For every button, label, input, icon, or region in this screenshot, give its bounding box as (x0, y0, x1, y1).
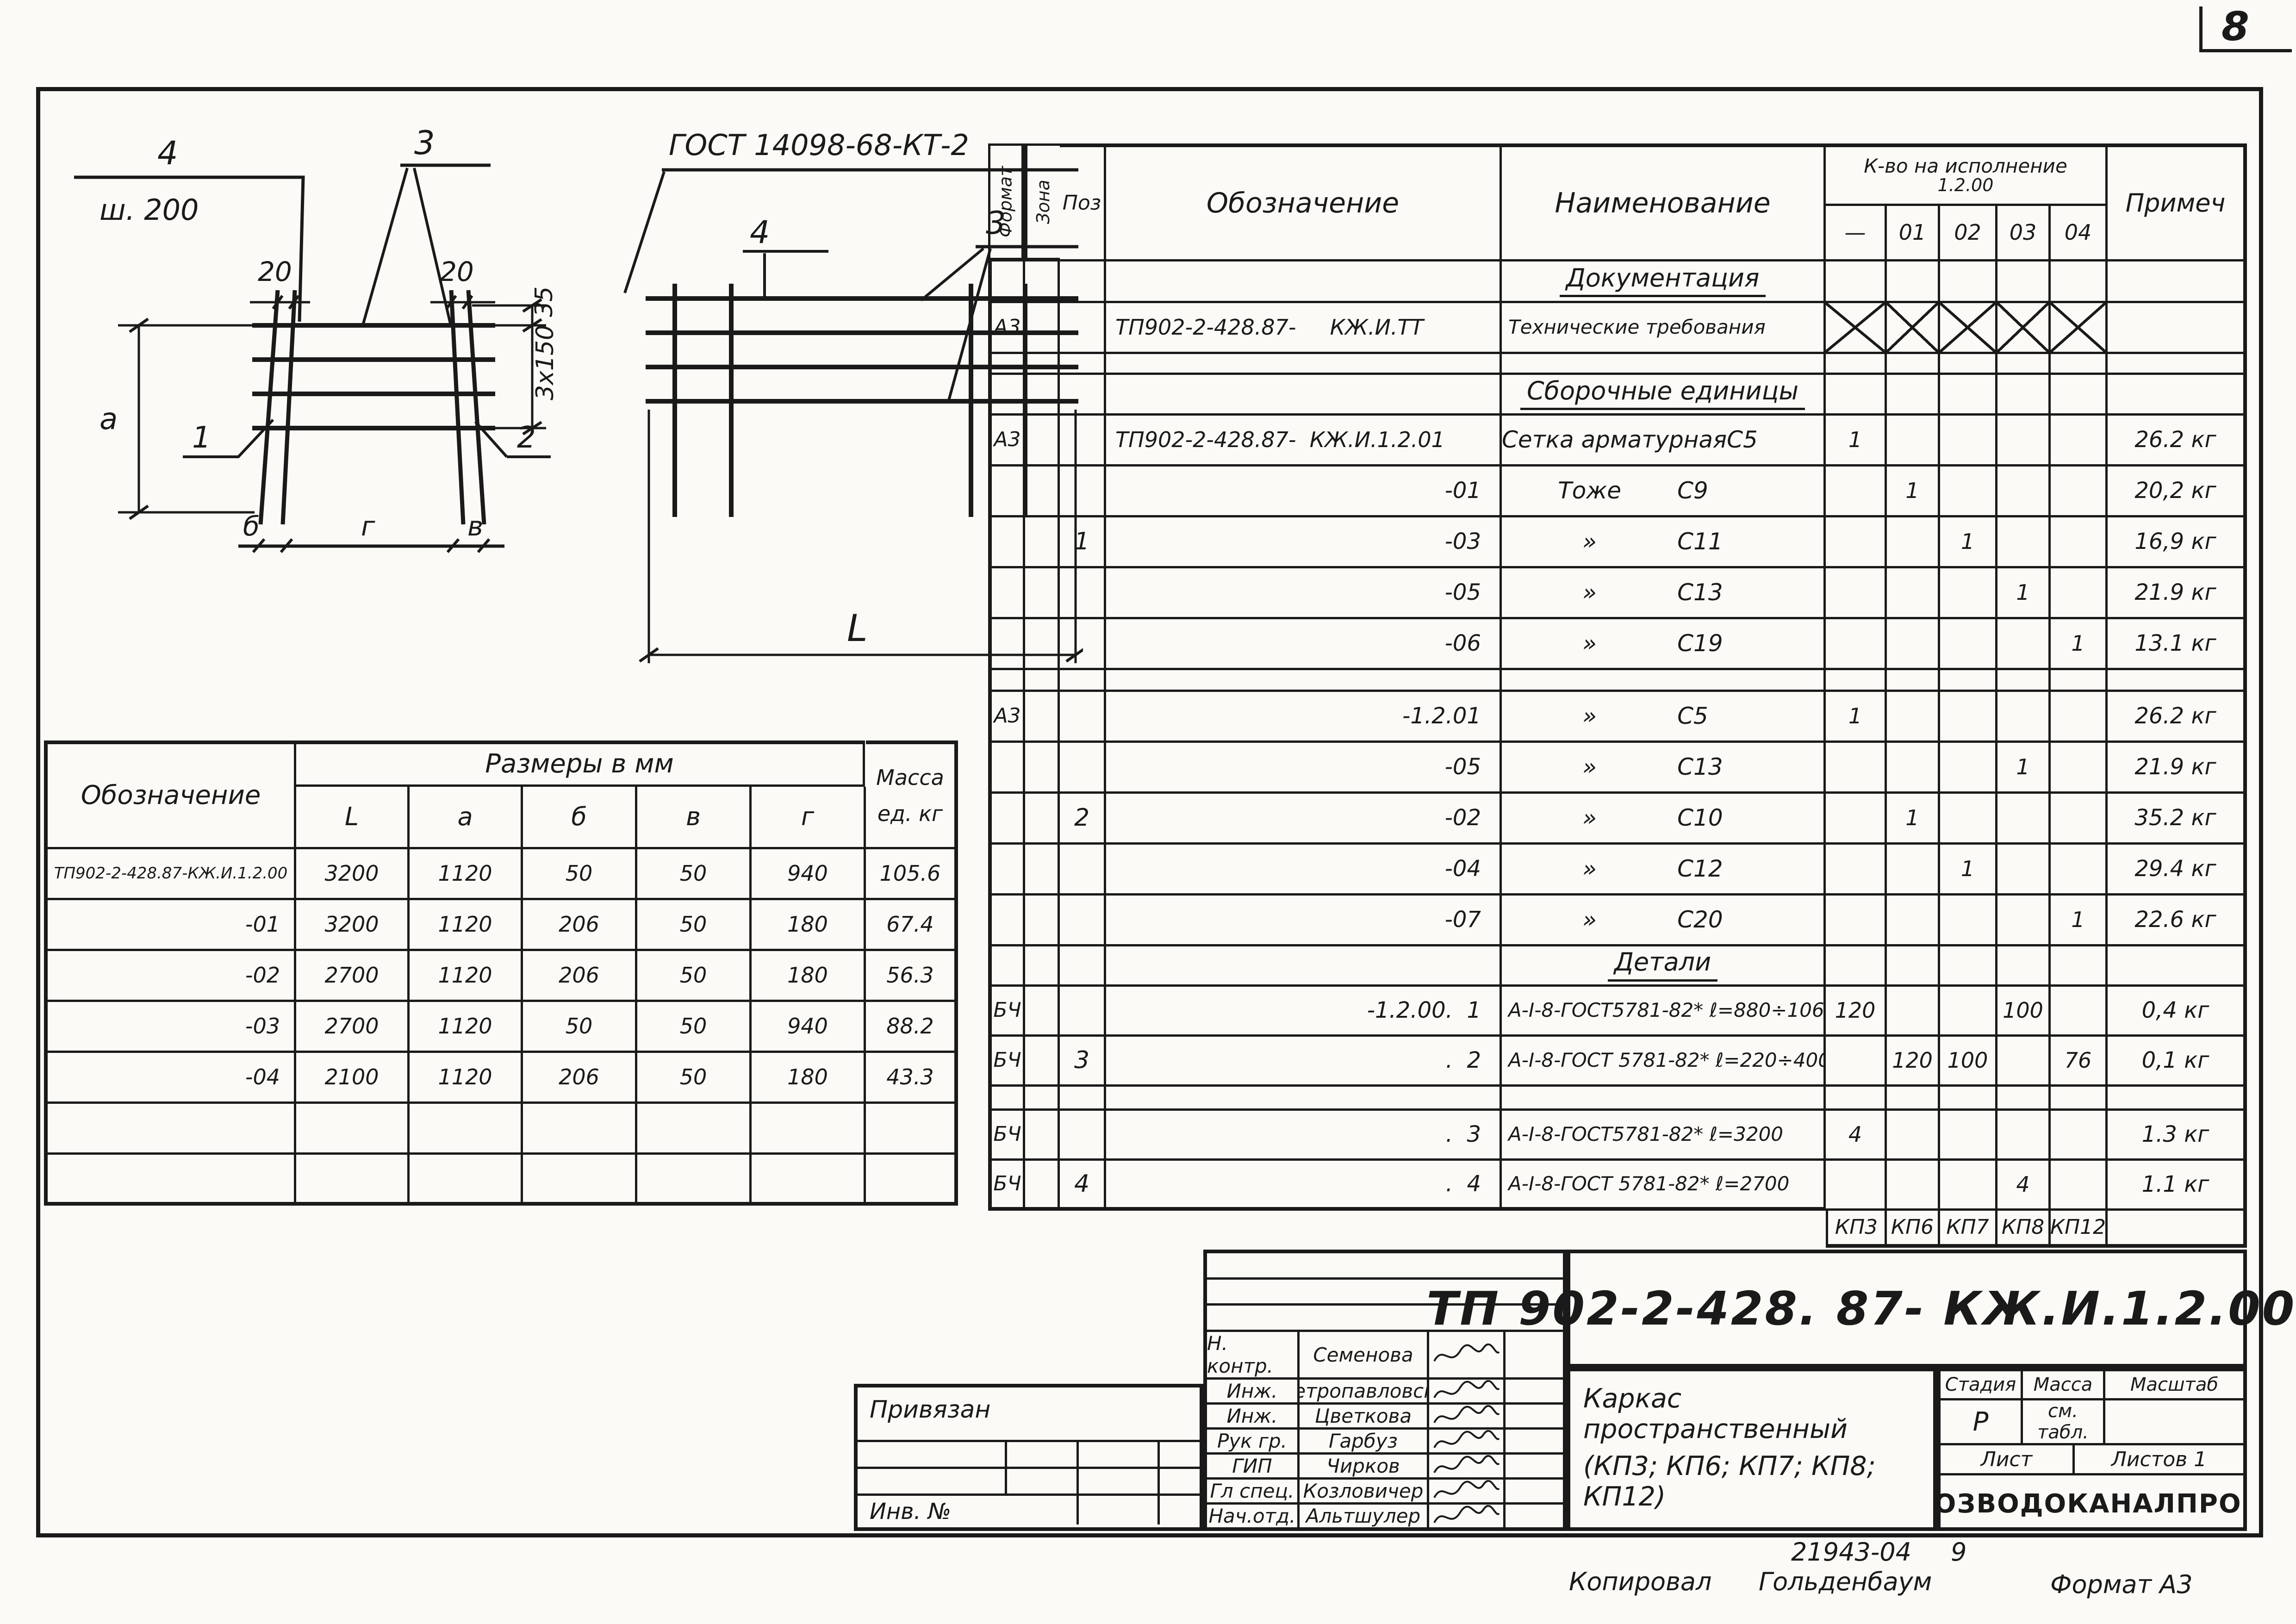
spec-cell-note: 22.6 кг (2108, 896, 2247, 946)
spec-cell-qty-1 (1887, 743, 1940, 794)
spec-cell-zone (1025, 303, 1060, 354)
spec-cell-qty-1 (1887, 354, 1940, 375)
dims-header-size-3: в (637, 787, 752, 849)
spec-cell-pos: 1 (1060, 517, 1106, 568)
spec-cell-note: 1.3 кг (2108, 1111, 2247, 1161)
spec-cell-qty-4 (2051, 1111, 2108, 1161)
signature-cell (1429, 1505, 1506, 1527)
signature-row: Рук гр.Гарбуз (1207, 1430, 1563, 1455)
spec-cell-qty-4: 1 (2051, 619, 2108, 670)
spec-cell-qty-4 (2051, 987, 2108, 1037)
spec-cell-pos (1060, 354, 1106, 375)
spec-cell-qty-1 (1887, 416, 1940, 467)
spec-cell-qty-3: 4 (1997, 1161, 2051, 1211)
spec-cell-format (988, 354, 1025, 375)
spec-header-qty-3: 03 (1997, 206, 2051, 261)
spec-cell-qty-1 (1887, 1111, 1940, 1161)
spec-cell-note (2108, 1087, 2247, 1111)
spec-cell-format (988, 896, 1025, 946)
dims-cell-2: 1120 (410, 951, 523, 1002)
drawing-sheet: 8 (0, 0, 2296, 1624)
signature-date (1506, 1455, 1563, 1477)
spec-cell-pos (1060, 946, 1106, 987)
signature-row: Инж.Петропавловска (1207, 1380, 1563, 1405)
spec-cell-zone (1025, 1087, 1060, 1111)
spec-cell-qty-4 (2051, 467, 2108, 517)
dims-cell-5: 180 (752, 900, 866, 951)
spec-cell-pos (1060, 303, 1106, 354)
dims-cell-0 (44, 1155, 296, 1206)
spec-cell-pos (1060, 692, 1106, 743)
spec-cell-format (988, 743, 1025, 794)
spec-cell-qty-4 (2051, 375, 2108, 416)
signature-date (1506, 1480, 1563, 1502)
spec-cell-qty-3 (1997, 303, 2051, 354)
spec-cell-qty-2 (1940, 354, 1997, 375)
label-pitch: ш. 200 (100, 193, 199, 227)
spec-cell-qty-3 (1997, 794, 2051, 845)
spec-cell-qty-2 (1940, 1087, 1997, 1111)
spec-cell-qty-4: 1 (2051, 896, 2108, 946)
spec-cell-qty-2: 1 (1940, 845, 1997, 896)
spec-cell-zone (1025, 743, 1060, 794)
spec-cell-designation: -1.2.01 (1106, 692, 1502, 743)
spec-cell-note: 16,9 кг (2108, 517, 2247, 568)
spec-cell-qty-1 (1887, 619, 1940, 670)
spec-cell-qty-2 (1940, 670, 1997, 692)
spec-cell-qty-2 (1940, 1161, 1997, 1211)
spec-cell-qty-4: 76 (2051, 1037, 2108, 1087)
doc-number-cell: ТП 902-2-428. 87- КЖ.И.1.2.00 СБ (1567, 1250, 2247, 1368)
drawing-title-line2: (КП3; КП6; КП7; КП8; КП12) (1583, 1451, 1933, 1512)
spec-cell-note (2108, 303, 2247, 354)
spec-cell-pos (1060, 261, 1106, 303)
spec-cell-qty-4 (2051, 794, 2108, 845)
spec-cell-designation: ТП902-2-428.87- КЖ.И.ТТ (1106, 303, 1502, 354)
dims-cell-0: -03 (44, 1002, 296, 1053)
scale-value (2105, 1400, 2243, 1443)
spec-cell-note: 13.1 кг (2108, 619, 2247, 670)
spec-cell-note (2108, 946, 2247, 987)
spec-cell-qty-2 (1940, 303, 1997, 354)
title-cell: Каркас пространственный (КП3; КП6; КП7; … (1567, 1368, 1937, 1531)
dims-cell-1: 2700 (296, 1002, 410, 1053)
mass-label: Масса (2023, 1371, 2105, 1398)
specification-table: ФорматЗонаПозОбозначениеНаименованиеК-во… (988, 143, 2247, 1250)
dims-cell-2: 1120 (410, 900, 523, 951)
spec-cell-zone (1025, 670, 1060, 692)
spec-header-pos: Поз (1060, 143, 1106, 261)
signature (1431, 1430, 1501, 1452)
kp-label-3: КП8 (1997, 1211, 2051, 1248)
dims-header-group: Размеры в мм (296, 740, 865, 787)
spec-cell-qty-4 (2051, 261, 2108, 303)
signature-date (1506, 1405, 1563, 1427)
dims-header-size-1: а (410, 787, 523, 849)
sheet-label: Лист (1941, 1445, 2075, 1473)
signature-cell (1429, 1332, 1506, 1377)
spec-cell-note (2108, 375, 2247, 416)
spec-cell-qty-2 (1940, 619, 1997, 670)
signature (1431, 1505, 1501, 1527)
spec-cell-qty-0 (1826, 517, 1887, 568)
spec-cell-qty-2: 1 (1940, 517, 1997, 568)
spec-cell-name: »С19 (1502, 619, 1826, 670)
spec-cell-qty-2 (1940, 946, 1997, 987)
sketch-frame-section: 4 ш. 200 3 20 20 а 35 3x150 1 2 б г в (44, 118, 562, 553)
spec-section-title: Документация (1502, 261, 1826, 303)
spec-cell-qty-1 (1887, 517, 1940, 568)
dims-header-size-2: б (523, 787, 637, 849)
binding-box: Привязан Инв. № (854, 1384, 1203, 1531)
spec-cell-zone (1025, 1037, 1060, 1087)
spec-cell-zone (1025, 416, 1060, 467)
dims-cell-4: 50 (637, 951, 752, 1002)
spec-cell-qty-0 (1826, 670, 1887, 692)
spec-cell-qty-3 (1997, 1111, 2051, 1161)
stage-value: Р (1941, 1400, 2023, 1443)
signature-name: Петропавловска (1300, 1380, 1429, 1402)
dims-cell-0: ТП902-2-428.87-КЖ.И.1.2.00 (44, 849, 296, 900)
spec-cell-format: БЧ (988, 1037, 1025, 1087)
spec-cell-qty-2 (1940, 375, 1997, 416)
label-dim20-left: 20 (258, 256, 292, 287)
spec-cell-qty-1 (1887, 845, 1940, 896)
spec-cell-note: 35.2 кг (2108, 794, 2247, 845)
spec-cell-qty-3 (1997, 670, 2051, 692)
spec-cell-format: БЧ (988, 1111, 1025, 1161)
kp-empty-note (2108, 1211, 2247, 1248)
spec-cell-qty-3 (1997, 354, 2051, 375)
spec-cell-designation: -04 (1106, 845, 1502, 896)
spec-cell-format (988, 1087, 1025, 1111)
spec-cell-qty-0 (1826, 354, 1887, 375)
signature-cell (1429, 1380, 1506, 1402)
signature (1431, 1455, 1501, 1477)
signature-name: Семенова (1300, 1332, 1429, 1377)
spec-cell-pos (1060, 743, 1106, 794)
footer-sheet-ref: 9 (1951, 1537, 1966, 1567)
spec-cell-name: ТожеС9 (1502, 467, 1826, 517)
signature-row: Гл спец.Козловичер (1207, 1480, 1563, 1505)
sheets-label: Листов 1 (2075, 1445, 2243, 1473)
spec-cell-name: »С13 (1502, 743, 1826, 794)
spec-cell-qty-2: 100 (1940, 1037, 1997, 1087)
signature-row: Н. контр.Семенова (1207, 1332, 1563, 1380)
spec-cell-format (988, 261, 1025, 303)
dims-cell-2: 1120 (410, 849, 523, 900)
spec-cell-qty-2 (1940, 467, 1997, 517)
spec-header-designation: Обозначение (1106, 143, 1502, 261)
label-dim-g: г (361, 510, 375, 542)
spec-cell-format: А3 (988, 692, 1025, 743)
dims-cell-4: 50 (637, 1053, 752, 1104)
spec-cell-note: 21.9 кг (2108, 743, 2247, 794)
dims-cell-0: -02 (44, 951, 296, 1002)
page-number: 8 (2221, 4, 2249, 50)
signature-date (1506, 1380, 1563, 1402)
spec-cell-qty-2 (1940, 261, 1997, 303)
dims-cell-3 (523, 1155, 637, 1206)
spec-cell-qty-3 (1997, 845, 2051, 896)
spec-header-name: Наименование (1502, 143, 1826, 261)
spec-cell-format: А3 (988, 416, 1025, 467)
spec-cell-qty-0 (1826, 946, 1887, 987)
spec-cell-qty-2 (1940, 896, 1997, 946)
spec-cell-qty-3 (1997, 619, 2051, 670)
signature-role: Гл спец. (1207, 1480, 1300, 1502)
spec-cell-format: А3 (988, 303, 1025, 354)
spec-cell-designation: -02 (1106, 794, 1502, 845)
spec-header-qty-1: 01 (1887, 206, 1940, 261)
spec-cell-designation: -05 (1106, 743, 1502, 794)
label-dim-L: L (847, 607, 868, 650)
spec-cell-qty-1: 1 (1887, 467, 1940, 517)
spec-header-zone: Зона (1025, 143, 1060, 261)
spec-cell-qty-2 (1940, 416, 1997, 467)
footer-copied-label: Копировал (1569, 1567, 1712, 1596)
spec-cell-designation: . 3 (1106, 1111, 1502, 1161)
spec-cell-designation (1106, 1087, 1502, 1111)
signature-name: Цветкова (1300, 1405, 1429, 1427)
spec-header-qty-group: К-во на исполнение1.2.00 (1826, 143, 2108, 206)
spec-cell-designation: -1.2.00. 1 (1106, 987, 1502, 1037)
spec-cell-note (2108, 354, 2247, 375)
spec-cell-qty-4 (2051, 303, 2108, 354)
signature-role: Рук гр. (1207, 1430, 1300, 1452)
label-pos4: 4 (157, 134, 178, 172)
spec-cell-name: А-I-8-ГОСТ5781-82* ℓ=880÷1060 (1502, 987, 1826, 1037)
signature-cell (1429, 1455, 1506, 1477)
spec-cell-zone (1025, 354, 1060, 375)
spec-cell-name: Сетка арматурнаяС5 (1502, 416, 1826, 467)
dims-cell-6: 56.3 (866, 951, 958, 1002)
spec-cell-qty-3 (1997, 261, 2051, 303)
spec-cell-qty-4 (2051, 1161, 2108, 1211)
spec-header-qty-4: 04 (2051, 206, 2108, 261)
spec-cell-qty-3 (1997, 467, 2051, 517)
organization-cell: СОЮЗВОДОКАНАЛПРОЕКТ (1941, 1475, 2243, 1532)
label-dim-v: в (467, 510, 483, 542)
spec-cell-qty-0 (1826, 619, 1887, 670)
spec-cell-designation (1106, 946, 1502, 987)
spec-cell-qty-1 (1887, 692, 1940, 743)
spec-cell-qty-4 (2051, 416, 2108, 467)
dims-cell-5: 180 (752, 1053, 866, 1104)
spec-cell-pos: 2 (1060, 794, 1106, 845)
kp-label-1: КП6 (1887, 1211, 1940, 1248)
spec-cell-qty-1 (1887, 1087, 1940, 1111)
stage-label: Стадия (1941, 1371, 2023, 1398)
spec-cell-zone (1025, 845, 1060, 896)
spec-cell-zone (1025, 467, 1060, 517)
spec-cell-qty-2 (1940, 987, 1997, 1037)
spec-section-title: Детали (1502, 946, 1826, 987)
spec-cell-name: А-I-8-ГОСТ 5781-82* ℓ=2700 (1502, 1161, 1826, 1211)
spec-header-qty-2: 02 (1940, 206, 1997, 261)
signature-name: Козловичер (1300, 1480, 1429, 1502)
spec-cell-designation: -06 (1106, 619, 1502, 670)
spec-cell-note: 0,4 кг (2108, 987, 2247, 1037)
spec-cell-zone (1025, 1111, 1060, 1161)
signature-row: Нач.отд.Альтшулер (1207, 1505, 1563, 1527)
spec-cell-zone (1025, 517, 1060, 568)
spec-cell-zone (1025, 375, 1060, 416)
spec-cell-qty-1 (1887, 303, 1940, 354)
spec-cell-note: 26.2 кг (2108, 416, 2247, 467)
spec-cell-note: 20,2 кг (2108, 467, 2247, 517)
spec-cell-zone (1025, 619, 1060, 670)
dims-cell-6 (866, 1155, 958, 1206)
spec-cell-qty-2 (1940, 1111, 1997, 1161)
label-dim-b: б (243, 510, 260, 542)
spec-cell-qty-1 (1887, 946, 1940, 987)
spec-cell-name: »С10 (1502, 794, 1826, 845)
dims-cell-0: -04 (44, 1053, 296, 1104)
spec-cell-qty-1 (1887, 896, 1940, 946)
label-callout2: 2 (517, 421, 536, 455)
spec-cell-zone (1025, 568, 1060, 619)
footer-copied-name: Гольденбаум (1759, 1567, 1932, 1596)
stage-block: Стадия Масса Масштаб Р см. табл. Лист Ли… (1937, 1368, 2247, 1531)
dims-cell-1: 2700 (296, 951, 410, 1002)
spec-cell-qty-3 (1997, 517, 2051, 568)
signature-role: Н. контр. (1207, 1332, 1300, 1377)
signature-role: Инж. (1207, 1380, 1300, 1402)
spec-cell-qty-0 (1826, 845, 1887, 896)
label-pos3: 3 (414, 124, 435, 162)
signature (1431, 1480, 1501, 1502)
dims-cell-0 (44, 1104, 296, 1155)
dims-cell-6: 43.3 (866, 1053, 958, 1104)
spec-cell-format (988, 375, 1025, 416)
spec-cell-name: Технические требования (1502, 303, 1826, 354)
dims-cell-3: 206 (523, 951, 637, 1002)
spec-cell-qty-0 (1826, 375, 1887, 416)
spec-cell-qty-0 (1826, 743, 1887, 794)
spec-cell-qty-0 (1826, 1161, 1887, 1211)
spec-cell-qty-2 (1940, 743, 1997, 794)
mass-value: см. табл. (2023, 1400, 2105, 1443)
spec-cell-qty-0 (1826, 261, 1887, 303)
spec-cell-qty-3 (1997, 416, 2051, 467)
spec-cell-qty-2 (1940, 692, 1997, 743)
inventory-label: Инв. № (870, 1499, 951, 1524)
spec-cell-designation: . 2 (1106, 1037, 1502, 1087)
spec-cell-zone (1025, 987, 1060, 1037)
spec-cell-qty-3 (1997, 946, 2051, 987)
dims-cell-1 (296, 1155, 410, 1206)
spec-cell-pos (1060, 845, 1106, 896)
spec-cell-pos (1060, 467, 1106, 517)
spec-cell-qty-0: 4 (1826, 1111, 1887, 1161)
spec-cell-name: А-I-8-ГОСТ 5781-82* ℓ=220÷400 (1502, 1037, 1826, 1087)
signature-cell (1429, 1480, 1506, 1502)
organization-name: СОЮЗВОДОКАНАЛПРОЕКТ (1941, 1489, 2243, 1519)
spec-cell-format: БЧ (988, 987, 1025, 1037)
spec-cell-note (2108, 670, 2247, 692)
label-gost-weld: ГОСТ 14098-68-КТ-2 (669, 128, 969, 162)
signature (1431, 1344, 1501, 1366)
spec-cell-qty-4 (2051, 946, 2108, 987)
signature-row: Инж.Цветкова (1207, 1405, 1563, 1430)
dims-cell-6: 88.2 (866, 1002, 958, 1053)
page-corner-tick (2199, 6, 2203, 50)
dims-cell-5: 180 (752, 951, 866, 1002)
spec-cell-pos (1060, 619, 1106, 670)
spec-cell-designation: -07 (1106, 896, 1502, 946)
dims-cell-2: 1120 (410, 1053, 523, 1104)
dims-header-size-0: L (296, 787, 410, 849)
dims-cell-5: 940 (752, 849, 866, 900)
spec-cell-note: 26.2 кг (2108, 692, 2247, 743)
signature-date (1506, 1332, 1563, 1377)
spec-cell-qty-3 (1997, 896, 2051, 946)
spec-cell-note: 21.9 кг (2108, 568, 2247, 619)
spec-cell-qty-4 (2051, 743, 2108, 794)
spec-cell-qty-4 (2051, 517, 2108, 568)
spec-cell-qty-3: 100 (1997, 987, 2051, 1037)
spec-cell-format (988, 517, 1025, 568)
spec-cell-qty-1 (1887, 375, 1940, 416)
dims-cell-1: 2100 (296, 1053, 410, 1104)
signature-name: Гарбуз (1300, 1430, 1429, 1452)
spec-cell-designation (1106, 354, 1502, 375)
spec-cell-note: 29.4 кг (2108, 845, 2247, 896)
dimensions-table: ОбозначениеРазмеры в ммLабвгМассаед. кгТ… (44, 740, 958, 1206)
spec-cell-designation: . 4 (1106, 1161, 1502, 1211)
spec-cell-designation (1106, 670, 1502, 692)
dims-cell-4 (637, 1104, 752, 1155)
signature-name: Альтшулер (1300, 1505, 1429, 1527)
spec-cell-designation: -03 (1106, 517, 1502, 568)
dims-cell-4 (637, 1155, 752, 1206)
spec-cell-note: 1.1 кг (2108, 1161, 2247, 1211)
dims-cell-6: 67.4 (866, 900, 958, 951)
spec-cell-pos: 3 (1060, 1037, 1106, 1087)
signature-role: Нач.отд. (1207, 1505, 1300, 1527)
spec-cell-qty-4 (2051, 670, 2108, 692)
spec-cell-designation (1106, 261, 1502, 303)
signature-name: Чирков (1300, 1455, 1429, 1477)
dims-cell-3: 50 (523, 849, 637, 900)
spec-cell-qty-0: 1 (1826, 692, 1887, 743)
dims-cell-3: 50 (523, 1002, 637, 1053)
dims-cell-2 (410, 1155, 523, 1206)
spec-cell-zone (1025, 946, 1060, 987)
spec-cell-qty-4 (2051, 1087, 2108, 1111)
spec-cell-qty-0 (1826, 794, 1887, 845)
spec-header-qty-0: — (1826, 206, 1887, 261)
spec-cell-format (988, 467, 1025, 517)
spec-cell-zone (1025, 261, 1060, 303)
spec-cell-qty-1 (1887, 568, 1940, 619)
spec-cell-qty-1 (1887, 261, 1940, 303)
dims-cell-1: 3200 (296, 900, 410, 951)
signature-role: Инж. (1207, 1405, 1300, 1427)
scale-label: Масштаб (2105, 1371, 2243, 1398)
spec-cell-format: БЧ (988, 1161, 1025, 1211)
spec-cell-qty-2 (1940, 568, 1997, 619)
dims-cell-6 (866, 1104, 958, 1155)
signature (1431, 1405, 1501, 1427)
spec-cell-designation: ТП902-2-428.87- КЖ.И.1.2.01 (1106, 416, 1502, 467)
drawing-title-line1: Каркас пространственный (1583, 1383, 1933, 1444)
footer-format-note: Формат А3 (2050, 1570, 2193, 1599)
doc-number: ТП 902-2-428. 87- КЖ.И.1.2.00 СБ (1426, 1282, 2296, 1336)
spec-cell-format (988, 619, 1025, 670)
spec-cell-qty-3 (1997, 1087, 2051, 1111)
